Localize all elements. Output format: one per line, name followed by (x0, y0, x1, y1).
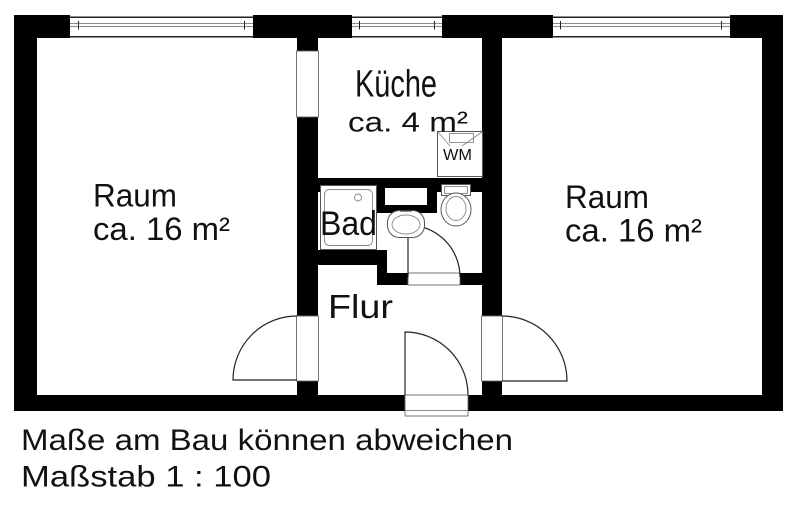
outer-wall-top-seg4 (730, 15, 783, 38)
outer-wall-right (762, 15, 783, 411)
label-room-right-area: ca. 16 m² (565, 213, 702, 249)
outer-wall-top-seg1 (14, 15, 70, 38)
mid-right-wall-lower (482, 381, 502, 395)
outer-wall-bottom-seg2 (468, 395, 783, 411)
plumbing-shaft-hole (385, 188, 427, 205)
label-room-left-name: Raum (93, 178, 177, 214)
footer-disclaimer: Maße am Bau können abweichen (21, 424, 513, 457)
window-kitchen (352, 16, 442, 38)
bath-doorway (408, 273, 460, 285)
outer-wall-left (14, 15, 37, 411)
hall-right-doorway (482, 316, 503, 381)
bath-hall-wall-step (387, 273, 408, 285)
footer-scale: Maßstab 1 : 100 (21, 461, 271, 494)
label-room-left-area: ca. 16 m² (93, 211, 230, 247)
outer-wall-bottom-seg1 (14, 395, 405, 411)
label-bath: Bad (320, 205, 377, 243)
outer-wall-top-seg2 (253, 15, 352, 38)
washbasin (388, 211, 425, 238)
windows (70, 16, 730, 38)
label-room-right-name: Raum (565, 179, 649, 215)
label-kitchen-name: Küche (355, 64, 437, 106)
mid-left-wall-middle (297, 117, 318, 316)
kitchen-doorway (297, 51, 319, 117)
bath-hall-wall-right (460, 273, 482, 285)
washing-machine: WM (438, 132, 483, 177)
bath-hall-wall-left (318, 250, 387, 265)
entrance-threshold (405, 395, 468, 416)
window-left-room (70, 16, 253, 38)
mid-left-wall-top (297, 38, 318, 51)
floor-plan-svg: WM Raum ca. 16 m² Küche ca. 4 m² Raum ca… (0, 0, 800, 506)
mid-left-wall-bottom (297, 381, 318, 395)
floor-plan-page: WM Raum ca. 16 m² Küche ca. 4 m² Raum ca… (0, 0, 800, 506)
label-hall: Flur (328, 288, 393, 325)
toilet (441, 185, 471, 227)
bath-hall-wall-jog (377, 265, 387, 285)
toilet-bowl (441, 193, 471, 226)
outer-wall-top-seg3 (442, 15, 553, 38)
mid-right-wall-upper (482, 38, 502, 316)
window-right-room (553, 16, 730, 38)
hall-left-doorway (297, 316, 319, 381)
washing-machine-label: WM (443, 147, 472, 164)
label-kitchen-area: ca. 4 m² (348, 107, 468, 138)
